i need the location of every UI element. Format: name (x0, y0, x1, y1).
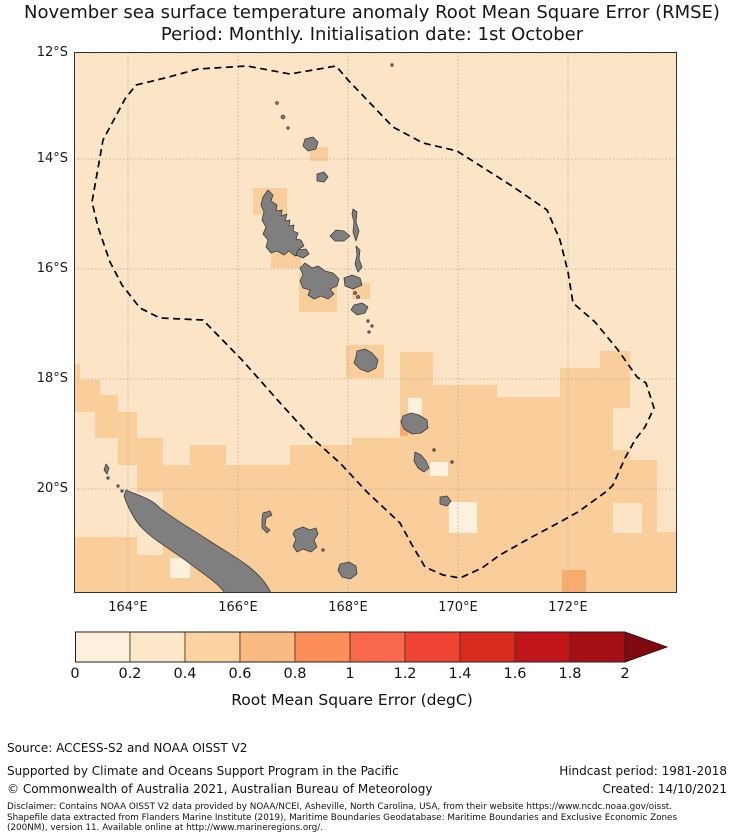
colorbar-tick-label: 2 (603, 666, 647, 682)
island-lopevi (357, 296, 360, 299)
island-torres (276, 102, 279, 105)
rmse-cell-low_over (637, 377, 657, 408)
lat-tick-label: 12°S (26, 45, 68, 60)
rmse-cell-mid (74, 380, 100, 396)
copyright-text: © Commonwealth of Australia 2021, Austra… (7, 782, 432, 796)
colorbar-extend-arrow (625, 632, 667, 662)
islet (117, 485, 119, 487)
island-futuna (451, 461, 454, 464)
map-svg (74, 52, 677, 593)
rmse-cell-mid (118, 438, 163, 465)
rmse-cell-lowest (430, 462, 448, 476)
island-shepherd (367, 320, 369, 322)
rmse-cell-low_over (613, 503, 642, 533)
lat-tick-label: 16°S (26, 261, 68, 276)
figure-subtitle: Period: Monthly. Initialisation date: 1s… (161, 24, 583, 45)
islet (121, 490, 123, 492)
rmse-cell-high (562, 570, 586, 593)
colorbar-tick-label: 1.6 (493, 666, 537, 682)
island-torres (281, 115, 285, 119)
supported-text: Supported by Climate and Oceans Support … (7, 764, 399, 778)
colorbar-segment (295, 632, 350, 662)
colorbar-tick-label: 0.2 (108, 666, 152, 682)
colorbar-segment (185, 632, 240, 662)
colorbar-segment (405, 632, 460, 662)
disclaimer-text: Disclaimer: Contains NOAA OISST V2 data … (7, 802, 677, 834)
island-aniwa (433, 449, 436, 452)
rmse-cell-mid (560, 368, 600, 593)
colorbar-segment (515, 632, 570, 662)
lat-tick-label: 18°S (26, 371, 68, 386)
colorbar-tick-label: 1 (328, 666, 372, 682)
disclaimer-line: Shapefile data extracted from Flanders M… (7, 813, 677, 824)
island-torres (287, 127, 289, 129)
colorbar-title: Root Mean Square Error (degC) (231, 691, 473, 709)
colorbar-segment (130, 632, 185, 662)
rmse-cell-mid (497, 397, 560, 593)
lon-tick-label: 166°E (212, 600, 264, 615)
rmse-cell-low_over (74, 412, 95, 492)
rmse-cell-mid (657, 532, 677, 593)
lat-tick-label: 14°S (26, 151, 68, 166)
lon-tick-label: 172°E (542, 600, 594, 615)
lon-tick-label: 168°E (322, 600, 374, 615)
rmse-cell-low_over (74, 492, 118, 537)
colorbar-segment (570, 632, 625, 662)
colorbar-svg (75, 631, 675, 665)
rmse-cell-mid (600, 351, 630, 593)
island-torres (391, 64, 393, 66)
colorbar-tick-label: 0.8 (273, 666, 317, 682)
colorbar-tick-label: 1.2 (383, 666, 427, 682)
rmse-cell-mid (400, 352, 433, 593)
colorbar-segment (240, 632, 295, 662)
disclaimer-line: Disclaimer: Contains NOAA OISST V2 data … (7, 802, 677, 813)
rmse-cell-mid (137, 465, 190, 492)
rmse-cell-lowest (449, 502, 477, 533)
rmse-cell-mid (95, 412, 137, 438)
hindcast-period-text: Hindcast period: 1981-2018 (559, 764, 727, 778)
source-text: Source: ACCESS-S2 and NOAA OISST V2 (7, 741, 247, 755)
island-paama (354, 292, 357, 295)
colorbar-tick-label: 0.4 (163, 666, 207, 682)
colorbar-segment (350, 632, 405, 662)
colorbar-tick-label: 1.4 (438, 666, 482, 682)
island-shepherd (368, 331, 370, 333)
colorbar (75, 631, 675, 665)
island-belep (107, 477, 109, 479)
lon-tick-label: 164°E (102, 600, 154, 615)
colorbar-segment (460, 632, 515, 662)
colorbar-segment (75, 632, 130, 662)
colorbar-tick-label: 0.6 (218, 666, 262, 682)
disclaimer-line: (200NM), version 11. Available online at… (7, 823, 677, 834)
map-area (74, 52, 677, 593)
colorbar-tick-label: 1.8 (548, 666, 592, 682)
lat-tick-label: 20°S (26, 481, 68, 496)
created-date-text: Created: 14/10/2021 (602, 782, 727, 796)
figure-title: November sea surface temperature anomaly… (24, 2, 720, 23)
island-shepherd (371, 325, 373, 327)
island-tiga (322, 549, 324, 551)
colorbar-tick-label: 0 (53, 666, 97, 682)
lon-tick-label: 170°E (432, 600, 484, 615)
island-lifou (293, 527, 318, 552)
rmse-cell-mid (74, 395, 118, 412)
